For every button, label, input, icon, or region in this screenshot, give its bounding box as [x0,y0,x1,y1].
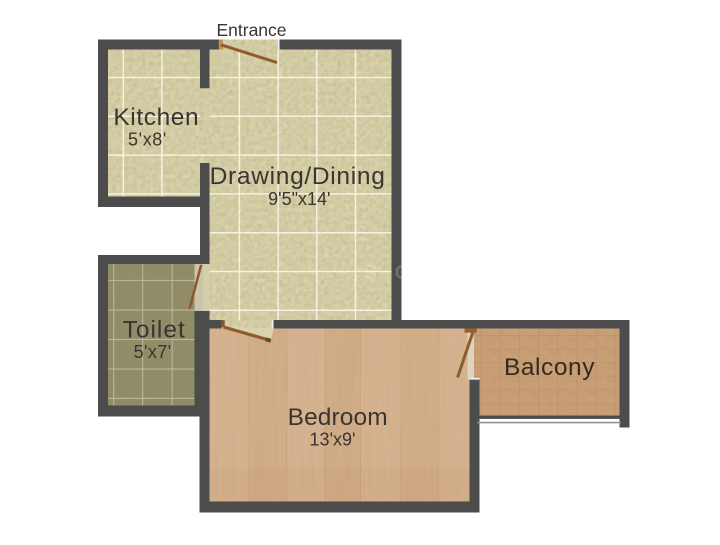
svg-text:5'x8': 5'x8' [128,129,167,149]
svg-text:Entrance: Entrance [216,20,286,40]
svg-text:5'x7': 5'x7' [134,342,172,362]
svg-text:Drawing/Dining: Drawing/Dining [210,163,386,190]
svg-text:9'5"x14': 9'5"x14' [268,189,330,209]
svg-text:Kitchen: Kitchen [113,104,199,131]
svg-text:Balcony: Balcony [504,354,595,381]
svg-text:13'x9': 13'x9' [310,430,356,450]
svg-text:Bedroom: Bedroom [288,404,388,431]
svg-text:Toilet: Toilet [123,317,186,344]
svg-text:S G: S G [364,262,416,284]
